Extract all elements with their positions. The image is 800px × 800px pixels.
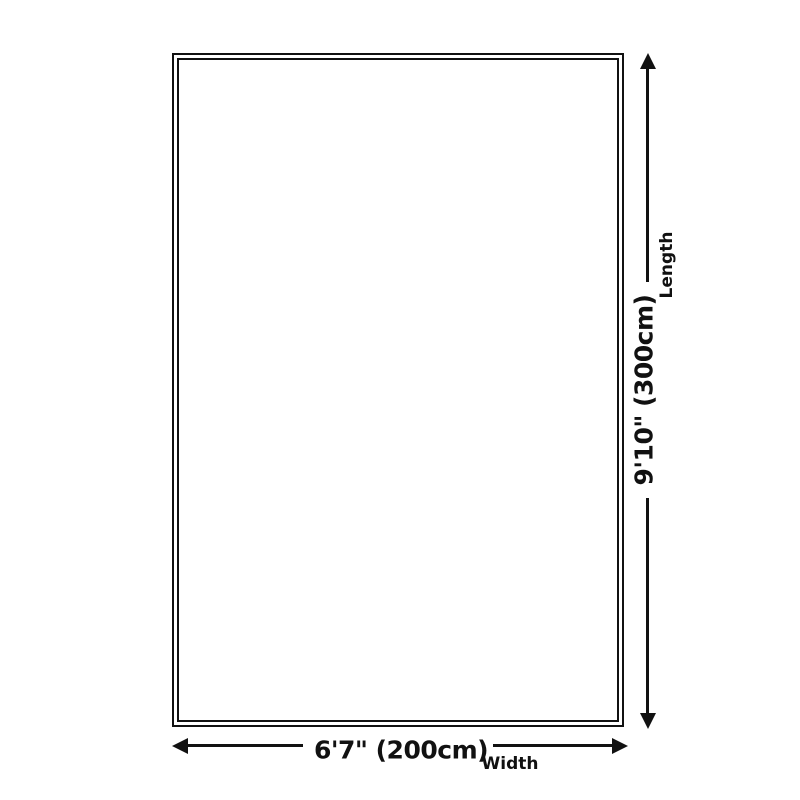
rug-outline-inner [177, 58, 619, 722]
length-dimension-line-bottom [646, 498, 649, 716]
length-value: 9'10" (300cm) [630, 295, 659, 486]
width-dimension-line-left [185, 744, 303, 747]
arrow-down-icon [640, 713, 656, 729]
width-dimension-line-right [493, 744, 613, 747]
length-label: Length [657, 232, 677, 299]
width-label: Width [482, 754, 539, 774]
rug-size-diagram: Length 9'10" (300cm) 6'7" (200cm) Width [0, 0, 800, 800]
width-value: 6'7" (200cm) [314, 736, 488, 765]
length-dimension-line-top [646, 66, 649, 282]
arrow-right-icon [612, 738, 628, 754]
rug-outline [172, 53, 624, 727]
